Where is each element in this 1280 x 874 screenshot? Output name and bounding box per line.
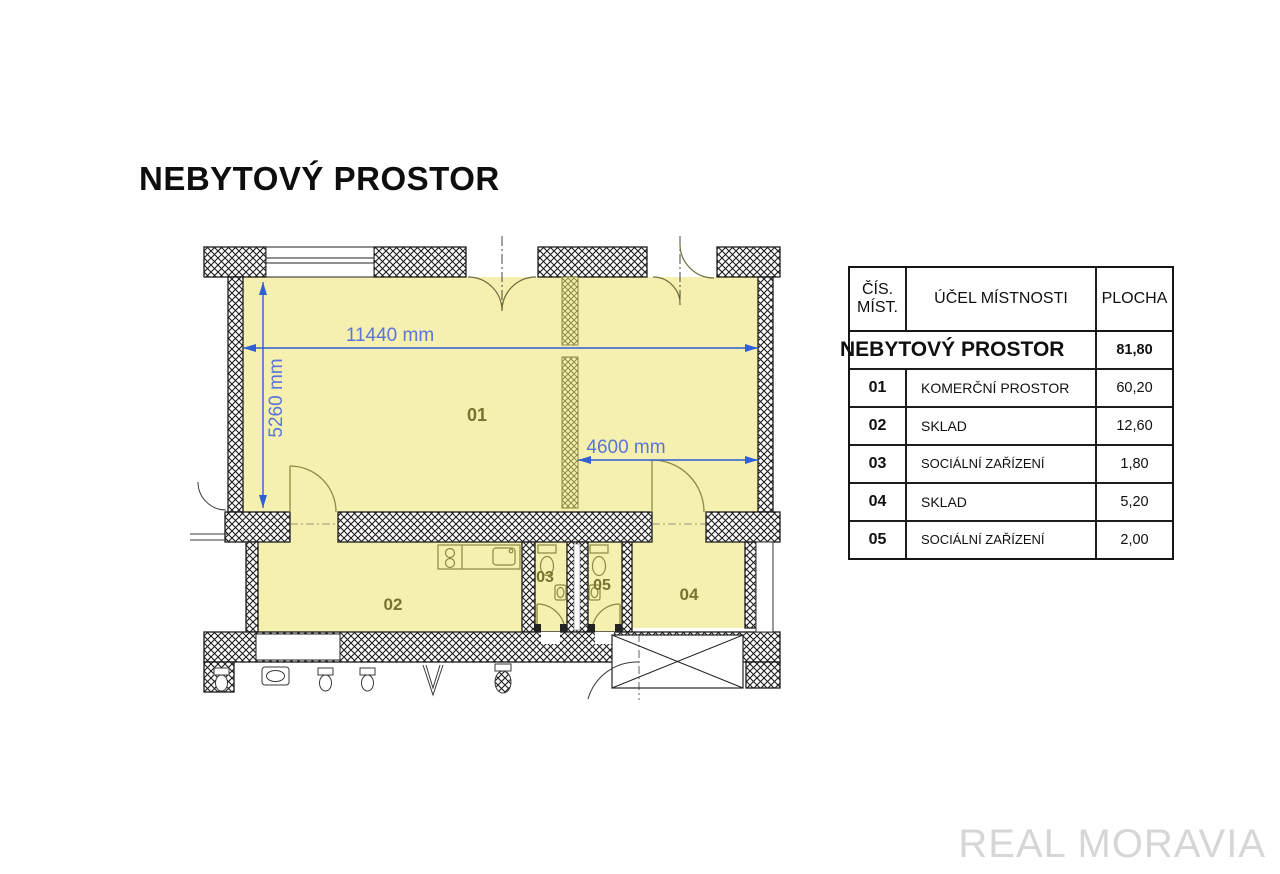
partition-wall bbox=[562, 277, 578, 508]
summary-label: NEBYTOVÝ PROSTOR bbox=[840, 332, 1097, 368]
room-area: 1,80 bbox=[1097, 446, 1172, 482]
room-purpose: SKLAD bbox=[907, 484, 1097, 520]
table-row: 03 SOCIÁLNÍ ZAŘÍZENÍ 1,80 bbox=[850, 446, 1172, 484]
room-label-02: 02 bbox=[384, 595, 403, 614]
table-summary-row: NEBYTOVÝ PROSTOR 81,80 bbox=[850, 332, 1172, 370]
summary-area: 81,80 bbox=[1097, 332, 1172, 368]
room-number: 05 bbox=[850, 522, 907, 558]
col-header-area: PLOCHA bbox=[1097, 268, 1172, 330]
room-purpose: SOCIÁLNÍ ZAŘÍZENÍ bbox=[907, 446, 1097, 482]
page-title: NEBYTOVÝ PROSTOR bbox=[139, 160, 500, 198]
room-label-03: 03 bbox=[536, 569, 554, 586]
col-header-purpose: ÚČEL MÍSTNOSTI bbox=[907, 268, 1097, 330]
room-fills bbox=[243, 277, 758, 632]
room-label-01: 01 bbox=[467, 405, 487, 425]
floor-plan: 11440 mm 5260 mm 4600 mm 01 02 03 05 04 bbox=[190, 230, 790, 710]
table-row: 02 SKLAD 12,60 bbox=[850, 408, 1172, 446]
rooms-table: ČÍS. MÍST. ÚČEL MÍSTNOSTI PLOCHA NEBYTOV… bbox=[848, 266, 1174, 560]
floor-plan-svg: 11440 mm 5260 mm 4600 mm 01 02 03 05 04 bbox=[190, 230, 790, 710]
room-label-05: 05 bbox=[593, 577, 611, 594]
dimension-width-label: 11440 mm bbox=[346, 325, 434, 346]
room-number: 01 bbox=[850, 370, 907, 406]
dimension-partition-label: 4600 mm bbox=[586, 437, 665, 458]
room-purpose: SOCIÁLNÍ ZAŘÍZENÍ bbox=[907, 522, 1097, 558]
watermark: REAL MORAVIA bbox=[958, 822, 1266, 867]
room-purpose: SKLAD bbox=[907, 408, 1097, 444]
room-number: 02 bbox=[850, 408, 907, 444]
room-purpose: KOMERČNÍ PROSTOR bbox=[907, 370, 1097, 406]
room-number: 04 bbox=[850, 484, 907, 520]
room-area: 2,00 bbox=[1097, 522, 1172, 558]
dimension-height-label: 5260 mm bbox=[266, 358, 287, 437]
room-area: 5,20 bbox=[1097, 484, 1172, 520]
col-header-number: ČÍS. MÍST. bbox=[850, 268, 907, 330]
table-row: 04 SKLAD 5,20 bbox=[850, 484, 1172, 522]
room-label-04: 04 bbox=[680, 585, 699, 604]
table-header-row: ČÍS. MÍST. ÚČEL MÍSTNOSTI PLOCHA bbox=[850, 268, 1172, 332]
room-number: 03 bbox=[850, 446, 907, 482]
room-area: 12,60 bbox=[1097, 408, 1172, 444]
table-row: 05 SOCIÁLNÍ ZAŘÍZENÍ 2,00 bbox=[850, 522, 1172, 558]
table-row: 01 KOMERČNÍ PROSTOR 60,20 bbox=[850, 370, 1172, 408]
room-area: 60,20 bbox=[1097, 370, 1172, 406]
